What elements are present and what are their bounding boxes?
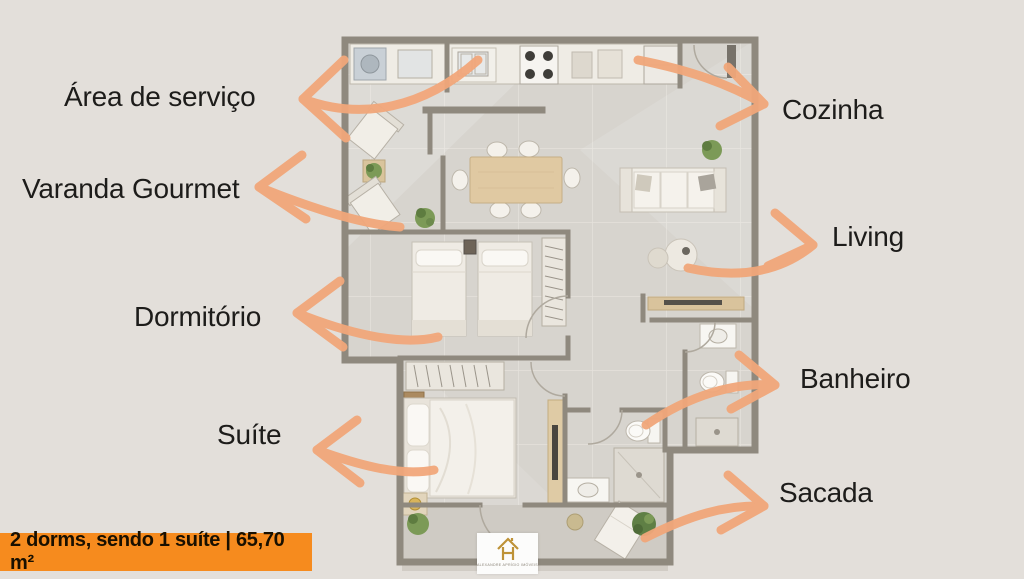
nightstand <box>464 240 476 254</box>
label-sacada: Sacada <box>779 479 873 507</box>
label-living: Living <box>832 223 904 251</box>
tv <box>664 300 722 305</box>
double-bed <box>404 398 516 498</box>
single-bed <box>412 242 466 336</box>
logo-company-name: ALEXANDRE APRÍGIO IMÓVEIS <box>477 563 538 567</box>
label-dormitorio: Dormitório <box>134 303 261 331</box>
pouf <box>567 514 583 530</box>
label-area-de-servico: Área de serviço <box>64 83 256 111</box>
house-logo-icon <box>494 536 522 562</box>
dining-table <box>470 157 562 203</box>
label-suite: Suíte <box>217 421 281 449</box>
label-cozinha: Cozinha <box>782 96 883 124</box>
summary-banner-text: 2 dorms, sendo 1 suíte | 65,70 m² <box>10 529 312 575</box>
logo: ALEXANDRE APRÍGIO IMÓVEIS <box>477 533 538 574</box>
dormitorio-furniture <box>412 238 566 336</box>
stove <box>520 46 558 84</box>
closet <box>542 238 566 326</box>
label-banheiro: Banheiro <box>800 365 910 393</box>
label-varanda-gourmet: Varanda Gourmet <box>22 175 240 203</box>
laundry-sink <box>398 50 432 78</box>
summary-banner: 2 dorms, sendo 1 suíte | 65,70 m² <box>0 533 312 571</box>
floorplan-page: Área de serviço Varanda Gourmet Dormitór… <box>0 0 1024 579</box>
single-bed <box>478 242 532 336</box>
